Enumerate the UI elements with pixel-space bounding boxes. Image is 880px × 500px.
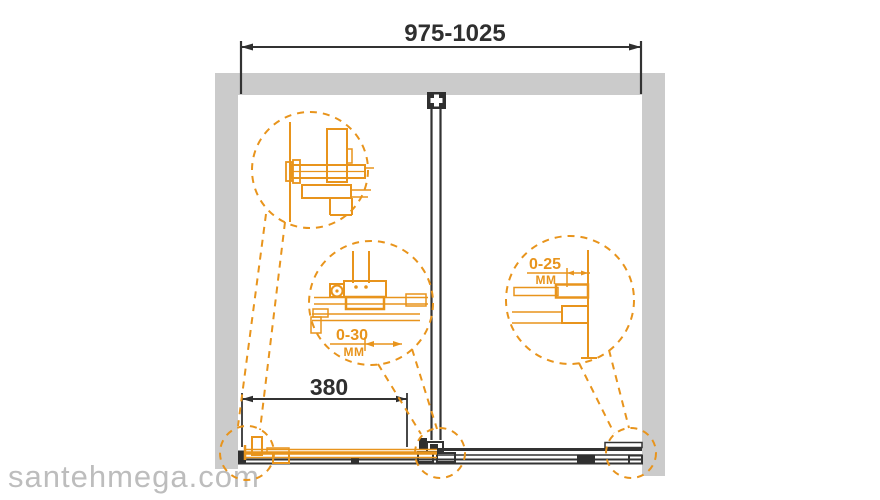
fixed-glass-panel: [427, 92, 446, 440]
wall-adjustment-unit: MM: [536, 273, 557, 287]
callout-wall-adjustment: 0-25 MM: [506, 236, 634, 364]
dim-arrow-right: [629, 44, 641, 51]
wall-top-band: [215, 73, 665, 95]
wall-right-strip: [642, 73, 665, 476]
dim-arrow-left: [241, 44, 253, 51]
dim-arrow: [581, 271, 588, 276]
callout-circle: [506, 236, 634, 364]
callout-circle: [309, 241, 433, 365]
dim-arrow-left: [242, 396, 253, 403]
callout-roller-floor-gap: 0-30 MM: [309, 241, 433, 365]
roller-carriage: [344, 281, 386, 297]
callout-wall-profile-section: [252, 112, 374, 228]
watermark-text: santehmega.com: [8, 459, 260, 494]
dim-arrow: [393, 341, 402, 347]
floor-gap-value: 0-30: [336, 327, 368, 344]
shower-door-technical-drawing: santehmega.com 975-1025: [0, 0, 880, 500]
dim-arrow: [567, 271, 574, 276]
overall-width-label: 975-1025: [404, 20, 505, 47]
track-stop: [351, 458, 359, 464]
diagram-canvas: santehmega.com 975-1025: [0, 0, 880, 500]
floor-gap-unit: MM: [344, 345, 365, 359]
callout-circle: [252, 112, 368, 228]
wall-adjustment-value: 0-25: [529, 256, 561, 273]
wall-left-strip: [215, 73, 238, 469]
bottom-track: [238, 438, 642, 464]
callout-leader-lines: [220, 214, 656, 480]
door-width-label: 380: [310, 374, 348, 400]
